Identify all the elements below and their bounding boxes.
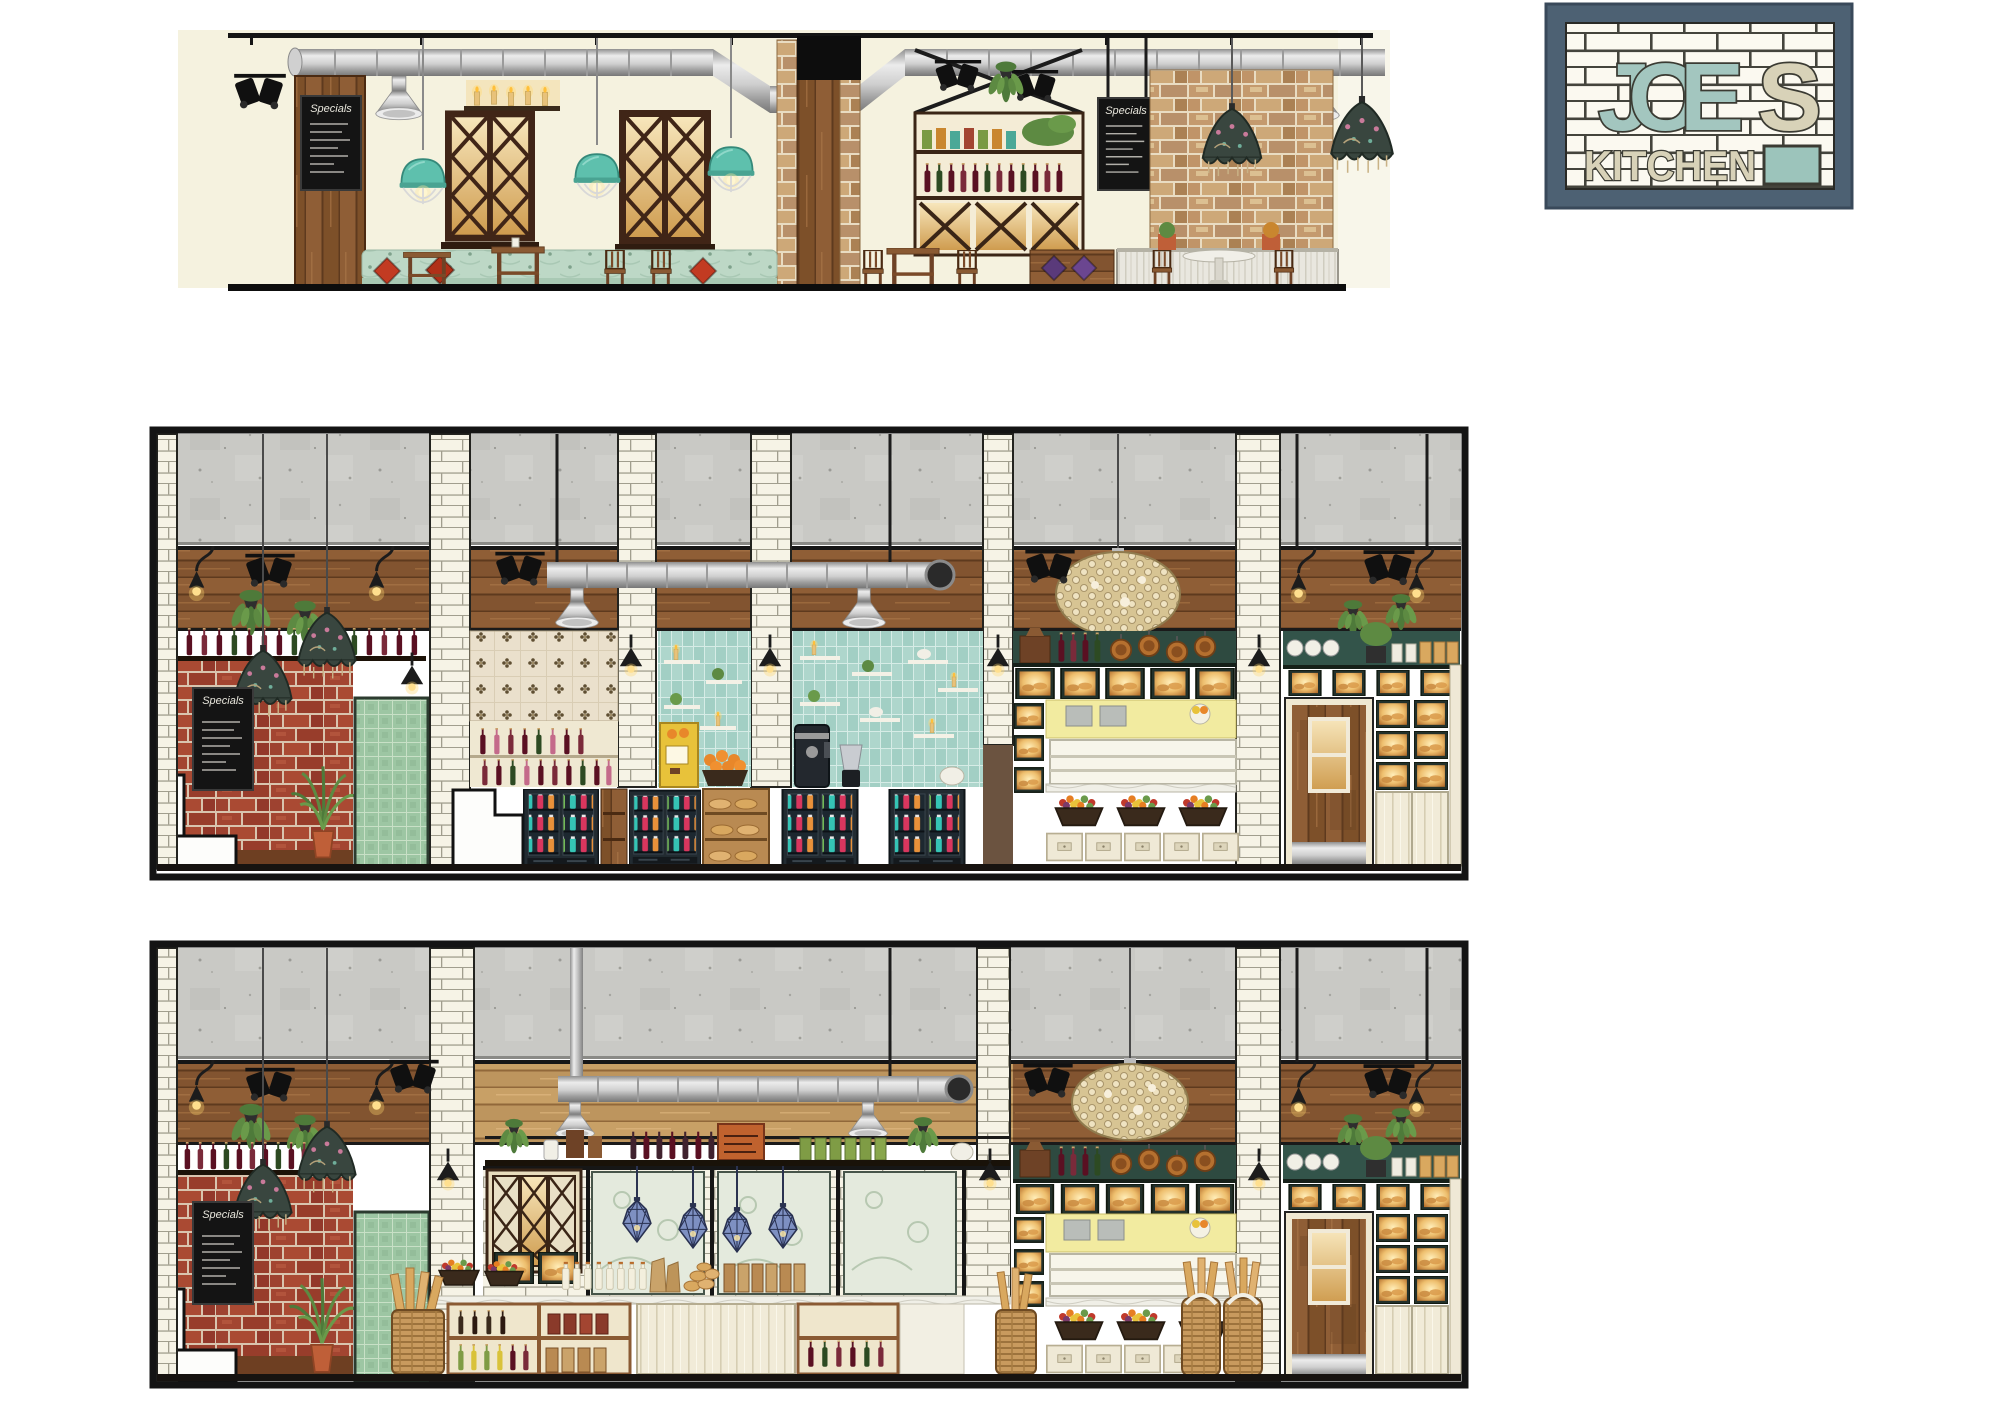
candle-shelf [464, 80, 560, 111]
bread-warmer-row [1016, 668, 1234, 699]
drinks-fridge [629, 791, 701, 867]
pot-plant [1159, 222, 1175, 238]
counter-bin [1098, 1220, 1124, 1240]
floor-shadow [157, 864, 1461, 871]
drinks-fridge [782, 789, 857, 868]
bread-warmer-row [1017, 1184, 1234, 1214]
green-tiled-door [355, 698, 428, 868]
logo-letters-joe: JOE [1598, 44, 1748, 151]
teapot [940, 767, 964, 785]
tall-cabinet [1450, 1179, 1461, 1374]
counter-end-panel [900, 1304, 964, 1374]
deli-counter [448, 1304, 964, 1374]
counter-bin [1100, 706, 1126, 726]
logo-word-kitchen: KITCHEN [1584, 142, 1756, 189]
bread-warmer-stack [1014, 704, 1044, 793]
panel-top-elevation: Specials [178, 30, 1393, 291]
duct-open-end [926, 561, 954, 589]
drinks-fridge [523, 789, 598, 868]
coffee-cup [512, 238, 519, 247]
wallpaper-bay [470, 631, 618, 787]
counter-bin [1066, 706, 1092, 726]
chalkboard-title: Specials [202, 695, 244, 707]
duct-open-end [946, 1076, 972, 1102]
marble-top [1046, 784, 1236, 792]
coffee-urn [795, 725, 830, 787]
joes-kitchen-logo: JOE S KITCHEN [1546, 4, 1852, 208]
orange-juice-machine [660, 723, 698, 787]
floor-shadow [157, 1374, 1461, 1381]
pedestal-table-post [1215, 258, 1223, 282]
timber-cubby [601, 789, 627, 868]
panel-bottom-elevation: Specials [153, 944, 1465, 1385]
lattice-window [445, 110, 535, 241]
cream-counter-front [637, 1304, 795, 1374]
jug [544, 1140, 558, 1160]
blender [840, 745, 862, 787]
center-servery [390, 1166, 1010, 1374]
logo-letter-s: S [1758, 44, 1826, 151]
counter-side-wall [983, 745, 1013, 868]
tall-cabinet [1450, 665, 1461, 866]
elevation-drawing: Specials [0, 0, 2000, 1414]
counter-bin [1064, 1220, 1090, 1240]
drawer-row [1047, 834, 1238, 861]
specials-chalkboard: Specials [193, 688, 253, 790]
baguette-basket [996, 1268, 1036, 1374]
shop-sign [718, 1124, 764, 1160]
coffee-bay [792, 631, 983, 787]
specials-chalkboard: Specials [193, 1202, 253, 1304]
fruit-plate [1190, 704, 1210, 724]
logo-accent-block [1764, 146, 1820, 184]
kitchen-door [1285, 698, 1373, 868]
chalkboard-title: Specials [1105, 105, 1147, 117]
paper-bag [666, 1262, 680, 1292]
plant-pot [1366, 1160, 1386, 1177]
drinks-fridge [889, 789, 964, 868]
lattice-window [619, 110, 711, 244]
specials-chalkboard: Specials [301, 96, 361, 190]
picture-frame [566, 1130, 584, 1158]
logo-word-joes: JOE S [1598, 44, 1826, 151]
serving-counter [1050, 740, 1236, 784]
door-kick-plate [1292, 842, 1366, 866]
pot-plant [1263, 222, 1279, 238]
juice-bay [658, 631, 751, 787]
panel-middle-elevation: Specials [153, 430, 1465, 877]
presentation-board: Specials [0, 0, 2000, 1414]
chalkboard-title: Specials [202, 1209, 244, 1221]
floor-line [228, 284, 1346, 291]
chalkboard-title: Specials [310, 103, 352, 115]
plant-pot [1366, 646, 1386, 663]
kitchen-door [1285, 1212, 1373, 1380]
paper-bag [650, 1258, 666, 1292]
duct-vent-box [797, 36, 861, 80]
fruit-plate [1190, 1218, 1210, 1238]
bread-shelf [703, 789, 769, 868]
lattice-wine-rack [920, 203, 1078, 250]
pot-plant [1360, 1136, 1392, 1160]
teapot [951, 1143, 973, 1161]
pot-plant [1360, 622, 1392, 646]
bread-warmer [538, 1252, 577, 1284]
center-brick-column [777, 36, 861, 288]
picture-frame [588, 1136, 602, 1158]
